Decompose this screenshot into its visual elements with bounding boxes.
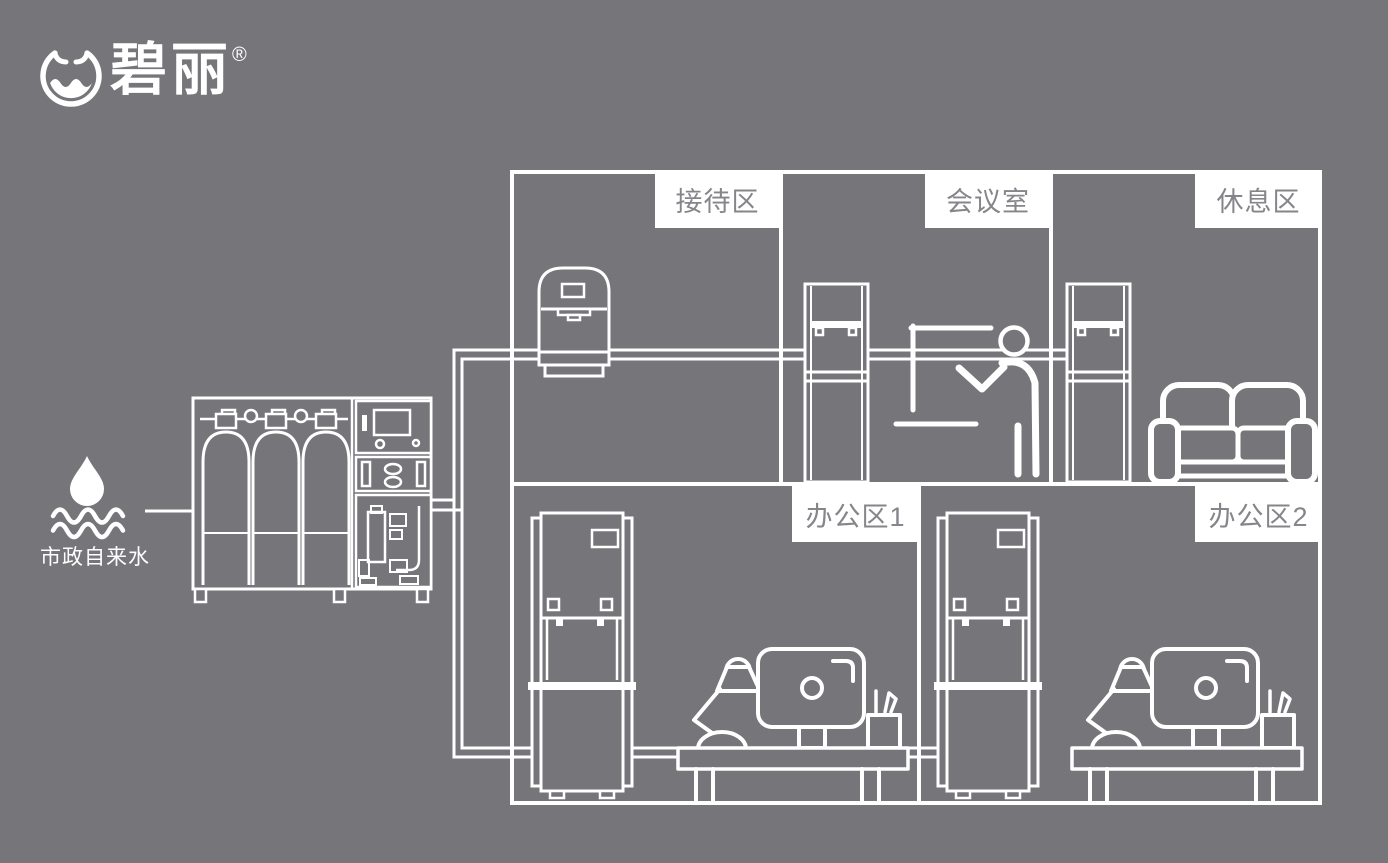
desk-workstation-1	[678, 649, 908, 801]
office-dispenser-2	[934, 513, 1042, 798]
water-bowl-logo-icon	[43, 53, 99, 104]
sofa-icon	[1151, 385, 1315, 482]
zone-label-office-2: 办公区2	[1195, 486, 1322, 542]
countertop-dispenser-reception	[539, 268, 609, 376]
diagram-canvas: 碧丽® 市政自来水 接待区 会议室 休息区 办公区1 办公区2	[0, 0, 1388, 863]
zone-label-rest-area: 休息区	[1195, 170, 1322, 228]
zone-label-meeting-room: 会议室	[925, 170, 1051, 228]
floor-dispenser-meeting-room	[805, 284, 868, 482]
office-dispenser-1	[528, 513, 636, 798]
water-source-label: 市政自来水	[40, 541, 150, 571]
line-art-layer	[0, 0, 1388, 863]
registered-trademark: ®	[232, 44, 247, 66]
brand-logo-text: 碧丽®	[110, 42, 247, 99]
floor-dispenser-rest-area	[1067, 284, 1130, 482]
zone-label-office-1: 办公区1	[792, 486, 919, 542]
water-purification-machine	[193, 398, 431, 602]
presenter-figure	[896, 326, 1036, 474]
zone-label-reception: 接待区	[655, 170, 780, 228]
water-drop-waves-icon	[53, 456, 123, 537]
desk-workstation-2	[1072, 649, 1302, 801]
